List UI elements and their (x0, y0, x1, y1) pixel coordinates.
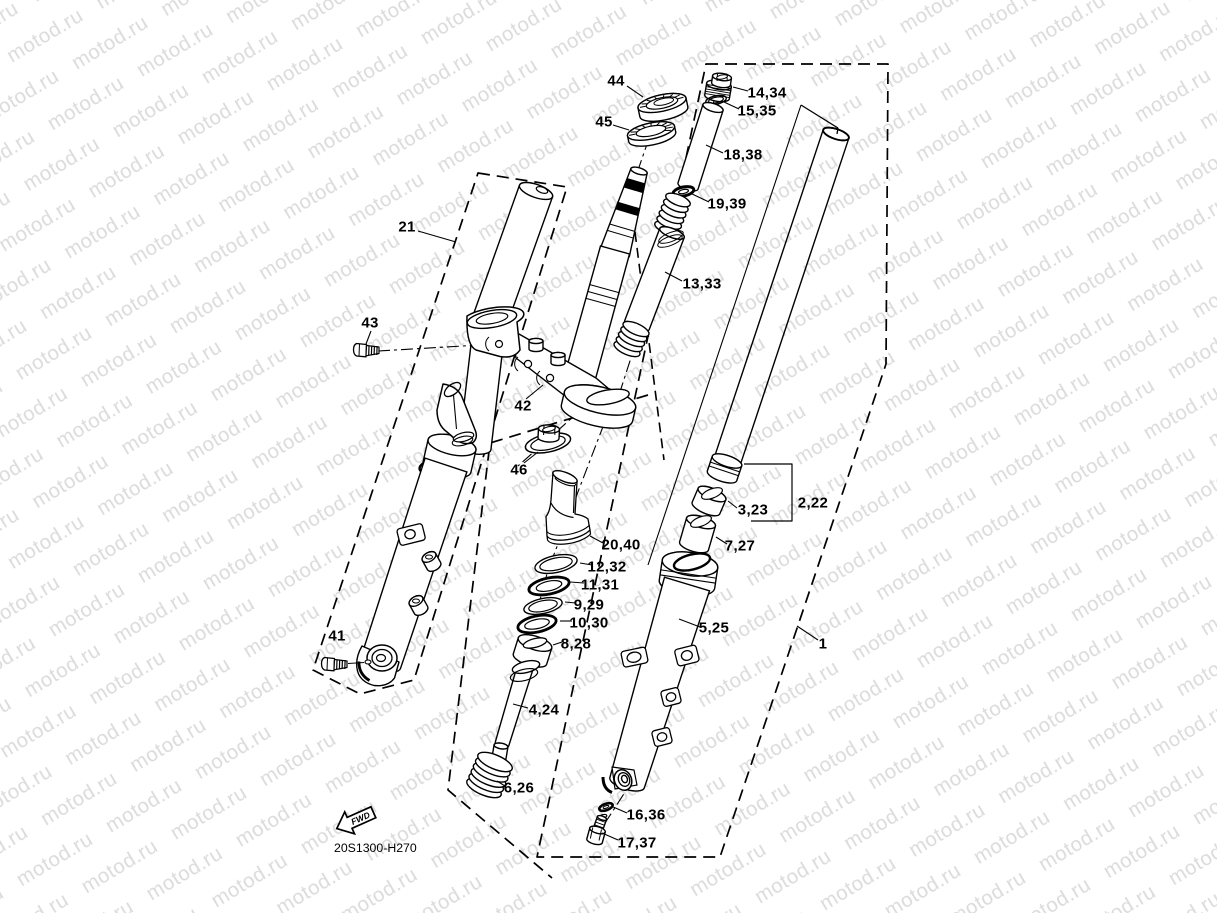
svg-text:14,34: 14,34 (747, 85, 786, 102)
svg-text:17,37: 17,37 (617, 835, 656, 852)
svg-text:20,40: 20,40 (601, 537, 640, 554)
svg-text:18,38: 18,38 (723, 147, 762, 164)
svg-text:42: 42 (514, 398, 531, 415)
svg-text:6,26: 6,26 (504, 780, 534, 797)
svg-text:3,23: 3,23 (738, 502, 768, 519)
svg-text:8,28: 8,28 (561, 636, 591, 653)
svg-text:10,30: 10,30 (569, 615, 608, 632)
svg-text:13,33: 13,33 (682, 276, 721, 293)
svg-text:7,27: 7,27 (725, 538, 755, 555)
svg-text:11,31: 11,31 (581, 577, 619, 594)
svg-text:19,39: 19,39 (707, 196, 746, 213)
svg-text:2,22: 2,22 (798, 495, 828, 512)
svg-text:45: 45 (595, 114, 612, 131)
svg-text:41: 41 (328, 628, 345, 645)
svg-text:15,35: 15,35 (737, 103, 776, 120)
svg-text:43: 43 (361, 315, 378, 332)
svg-text:1: 1 (819, 636, 828, 653)
svg-text:4,24: 4,24 (529, 702, 560, 719)
svg-text:20S1300-H270: 20S1300-H270 (334, 841, 417, 855)
svg-text:16,36: 16,36 (626, 807, 665, 824)
svg-text:44: 44 (607, 73, 625, 90)
svg-text:46: 46 (510, 462, 527, 479)
svg-text:12,32: 12,32 (587, 559, 626, 576)
svg-text:21: 21 (398, 219, 415, 236)
svg-text:5,25: 5,25 (699, 620, 729, 637)
svg-text:9,29: 9,29 (574, 597, 604, 614)
